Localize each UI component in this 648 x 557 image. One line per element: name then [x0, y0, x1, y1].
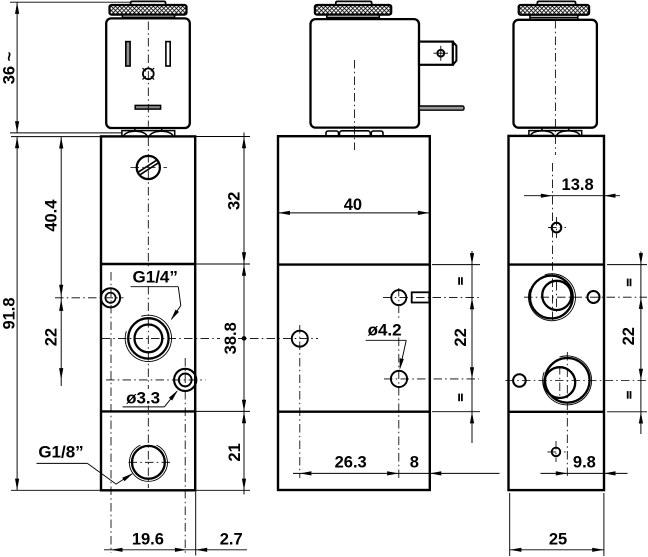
svg-text:22: 22 [452, 328, 470, 346]
svg-text:G1/8”: G1/8” [38, 442, 83, 461]
svg-text:19.6: 19.6 [132, 531, 164, 549]
svg-text:38.8: 38.8 [222, 322, 240, 354]
svg-text:36 ~: 36 ~ [1, 51, 19, 84]
svg-text:9.8: 9.8 [573, 454, 596, 472]
svg-text:8: 8 [410, 454, 419, 472]
svg-text:26.3: 26.3 [335, 454, 367, 472]
svg-text:21: 21 [226, 443, 244, 461]
svg-text:G1/4”: G1/4” [133, 268, 178, 287]
svg-text:40.4: 40.4 [43, 199, 61, 232]
svg-text:2.7: 2.7 [220, 531, 243, 549]
svg-text:ø4.2: ø4.2 [368, 320, 402, 339]
svg-text:22: 22 [43, 328, 61, 346]
svg-text:25: 25 [549, 530, 567, 548]
svg-text:22: 22 [620, 327, 638, 345]
svg-text:40: 40 [344, 196, 362, 214]
svg-text:32: 32 [225, 192, 243, 210]
svg-text:91.8: 91.8 [1, 297, 19, 329]
svg-text:ø3.3: ø3.3 [126, 388, 160, 407]
svg-text:13.8: 13.8 [562, 176, 594, 194]
